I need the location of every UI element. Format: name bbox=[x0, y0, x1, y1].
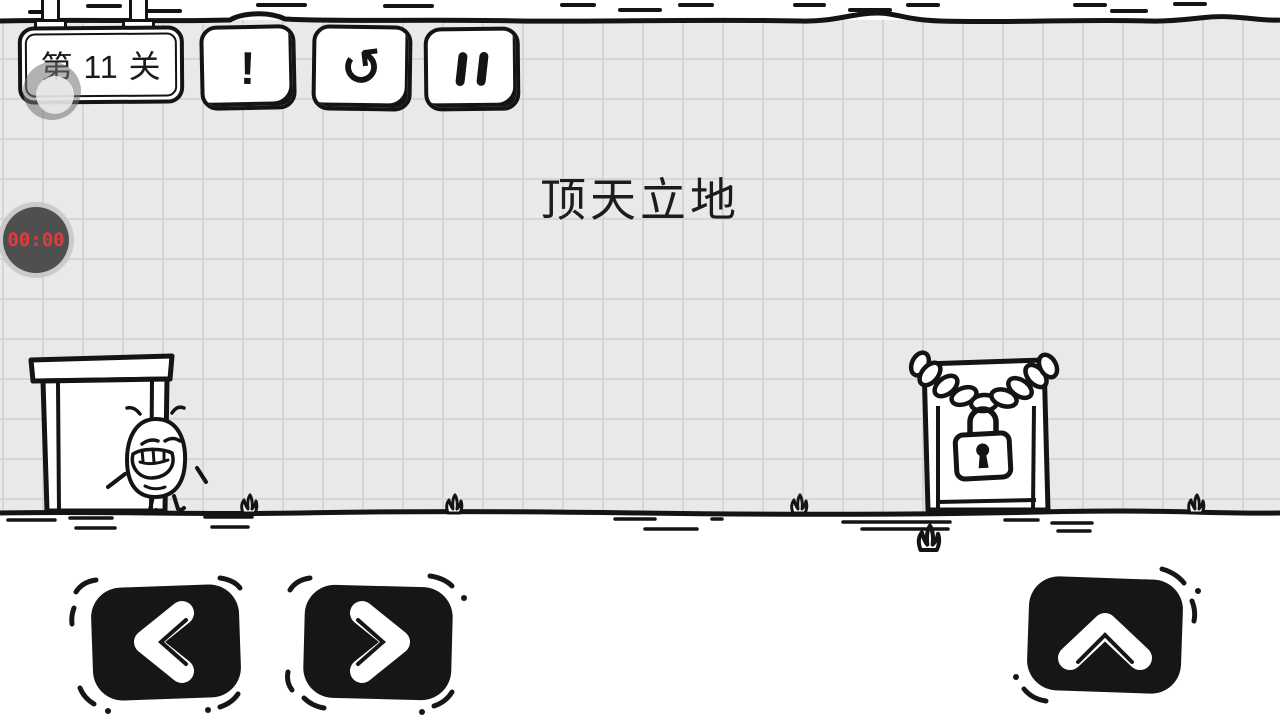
timer-face: 00:00 bbox=[3, 207, 69, 273]
jump-button[interactable] bbox=[1002, 561, 1206, 713]
top-border bbox=[0, 0, 1280, 34]
timer-badge: 00:00 bbox=[0, 202, 74, 278]
touch-indicator-dot bbox=[36, 76, 74, 114]
grass-tuft bbox=[447, 495, 462, 513]
egg-character[interactable] bbox=[100, 388, 210, 518]
level-title: 顶天立地 bbox=[0, 164, 1280, 230]
timer-value: 00:00 bbox=[7, 229, 64, 251]
grass-tuft bbox=[1189, 495, 1204, 513]
grass-tuft bbox=[792, 495, 807, 513]
grass-tuft bbox=[242, 495, 257, 513]
game-stage: 第 11 关 00:00 ! ↺ 顶天立地 bbox=[0, 0, 1280, 720]
restart-button[interactable]: ↺ bbox=[311, 24, 412, 111]
pause-bars-icon bbox=[457, 52, 487, 86]
exclamation-icon: ! bbox=[240, 40, 256, 94]
locked-door[interactable] bbox=[898, 346, 1060, 518]
move-right-button[interactable] bbox=[280, 568, 476, 720]
hint-button[interactable]: ! bbox=[199, 24, 297, 111]
pause-button[interactable] bbox=[424, 26, 521, 111]
move-left-button[interactable] bbox=[68, 568, 264, 720]
restart-arrow-icon: ↺ bbox=[338, 41, 386, 96]
